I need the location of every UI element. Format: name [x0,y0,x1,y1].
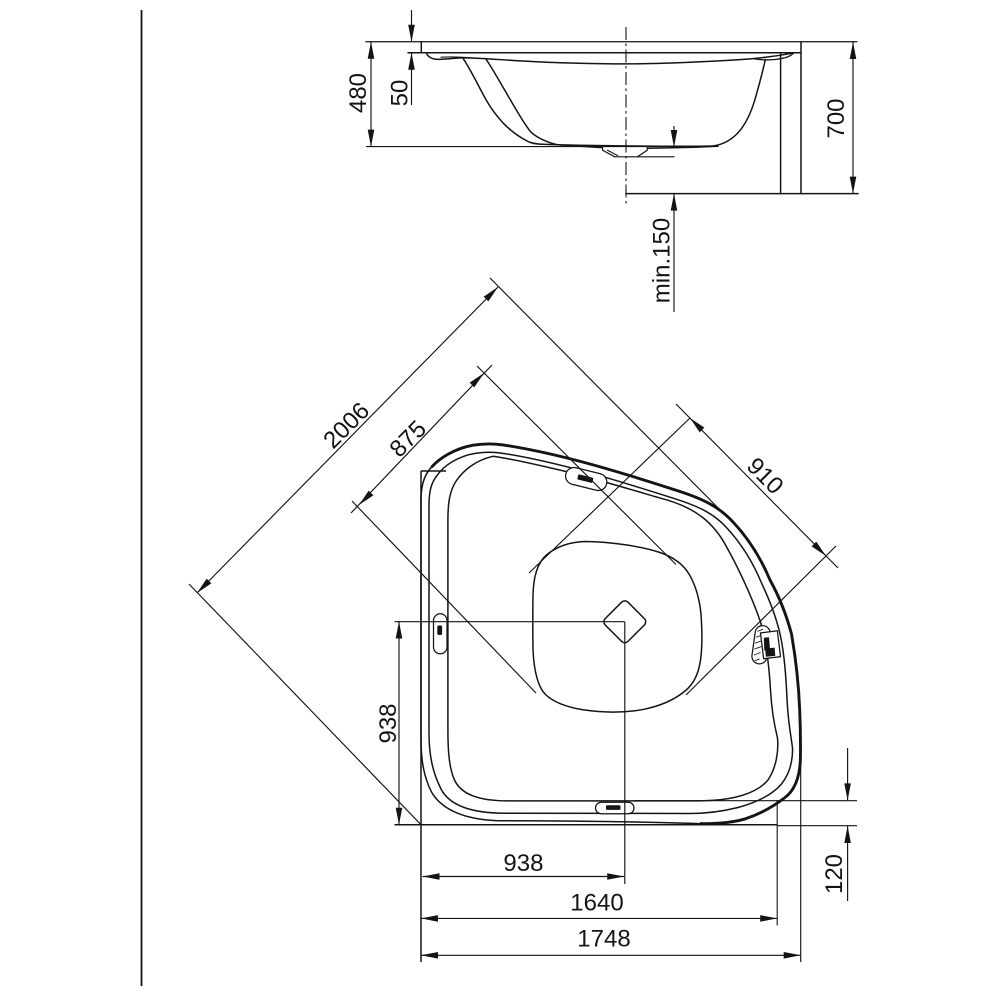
svg-text:min.150: min.150 [649,218,676,303]
svg-text:938: 938 [503,850,543,877]
svg-text:480: 480 [345,73,372,113]
svg-text:700: 700 [823,98,850,138]
svg-text:120: 120 [821,854,848,894]
svg-text:50: 50 [387,80,414,107]
svg-text:1748: 1748 [577,926,630,953]
svg-text:1640: 1640 [570,890,623,917]
svg-text:938: 938 [375,703,402,743]
